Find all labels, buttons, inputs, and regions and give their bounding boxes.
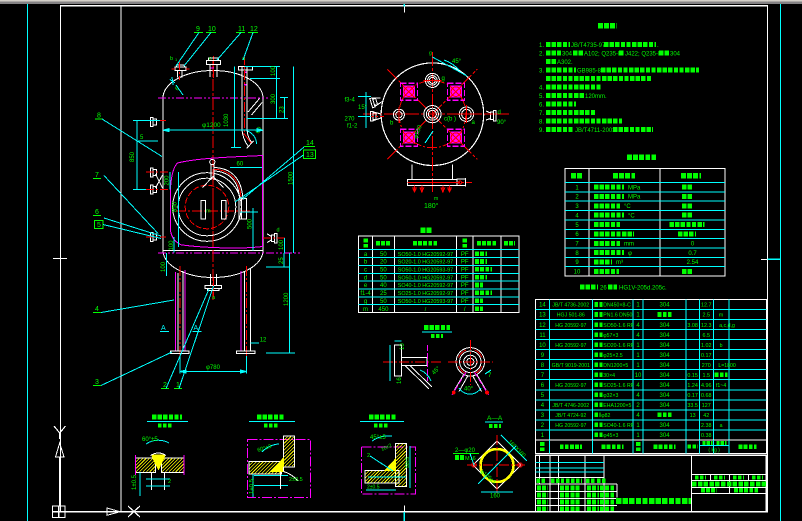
svg-text:14: 14 [306, 140, 314, 147]
svg-text:50: 50 [380, 299, 387, 305]
svg-text:50: 50 [380, 252, 387, 258]
svg-text:12: 12 [260, 338, 267, 344]
svg-text:f3-4: f3-4 [345, 98, 356, 104]
svg-text:2: 2 [367, 453, 370, 459]
svg-text:4.: 4. [539, 86, 544, 92]
svg-text:φ780: φ780 [206, 365, 221, 371]
svg-text:13: 13 [690, 413, 696, 419]
svg-text:6: 6 [95, 209, 99, 216]
svg-text:40: 40 [380, 283, 387, 289]
svg-text:SO50-1.0 HG20592-97: SO50-1.0 HG20592-97 [398, 252, 453, 258]
svg-text:304: 304 [670, 52, 681, 58]
svg-text:c: c [364, 268, 367, 274]
svg-text:60: 60 [237, 162, 244, 168]
svg-text:0.7: 0.7 [688, 251, 697, 257]
svg-text:L=1800: L=1800 [718, 363, 736, 369]
svg-text:7: 7 [95, 172, 99, 179]
svg-text:7.: 7. [539, 111, 544, 117]
svg-text:3: 3 [95, 379, 99, 386]
svg-text:φ32×3: φ32×3 [603, 393, 618, 399]
svg-text:GB/T 9019-2001: GB/T 9019-2001 [552, 363, 590, 369]
svg-text:2.38: 2.38 [701, 423, 712, 429]
svg-text:6.5: 6.5 [703, 333, 711, 339]
svg-text:GB985-89: GB985-89 [577, 69, 605, 75]
svg-text:25: 25 [380, 291, 387, 297]
svg-text:( kg ): ( kg ) [708, 448, 720, 454]
svg-text:g: g [429, 51, 432, 57]
svg-text:0.68: 0.68 [701, 393, 712, 399]
svg-text:SO50-1.0 HG20592-97: SO50-1.0 HG20592-97 [398, 275, 453, 281]
svg-text:JB/T 4746-2002: JB/T 4746-2002 [552, 403, 589, 409]
svg-text:23: 23 [280, 106, 286, 113]
svg-text:PF: PF [461, 299, 469, 305]
svg-text:11: 11 [238, 26, 245, 33]
svg-text:A302.: A302. [557, 60, 573, 66]
svg-text:10: 10 [208, 26, 216, 33]
svg-text:PF: PF [461, 260, 469, 266]
svg-text:HG 20592-97: HG 20592-97 [555, 423, 586, 429]
svg-text:M16: M16 [465, 456, 476, 462]
svg-text:a,c,d,g: a,c,d,g [719, 323, 735, 329]
svg-text:g: g [364, 299, 367, 305]
svg-text:12.7: 12.7 [701, 303, 712, 309]
svg-text:500: 500 [248, 218, 254, 229]
svg-text:m³: m³ [616, 260, 623, 266]
svg-text:m: m [719, 313, 723, 319]
svg-text:120mm.: 120mm. [585, 94, 607, 100]
svg-text:304: 304 [660, 383, 671, 389]
svg-text:1.5: 1.5 [703, 373, 711, 379]
svg-text:2.: 2. [539, 52, 544, 58]
svg-text:100: 100 [279, 239, 285, 250]
svg-text:PF: PF [461, 291, 469, 297]
svg-text:304: 304 [660, 363, 671, 369]
svg-text:φ57×3: φ57×3 [603, 333, 618, 339]
svg-text:304: 304 [562, 52, 573, 58]
svg-text:15°: 15° [358, 105, 368, 111]
svg-text:127: 127 [702, 403, 711, 409]
svg-text:d: d [364, 275, 367, 281]
svg-text:90°: 90° [497, 120, 507, 126]
svg-text:g: g [442, 76, 445, 82]
svg-text:100: 100 [161, 261, 167, 272]
svg-text:10: 10 [400, 343, 406, 350]
svg-text:MPa: MPa [628, 195, 641, 201]
svg-text:m: m [206, 209, 211, 215]
svg-text:4.96: 4.96 [701, 383, 712, 389]
svg-text:PF: PF [461, 252, 469, 258]
svg-text:PF: PF [461, 275, 469, 281]
svg-text:HG1V-205d.205c.: HG1V-205d.205c. [619, 285, 667, 291]
svg-text:4: 4 [95, 306, 99, 313]
svg-text:1500: 1500 [288, 171, 294, 185]
svg-text:10: 10 [574, 270, 581, 276]
svg-text:MPa: MPa [628, 185, 641, 191]
svg-text:JB/T4711-2003: JB/T4711-2003 [575, 128, 616, 134]
svg-text:PN1.6 DN50: PN1.6 DN50 [603, 313, 632, 319]
svg-text:12: 12 [250, 26, 258, 33]
svg-text:3.08: 3.08 [687, 323, 698, 329]
svg-text:0.17: 0.17 [701, 353, 712, 359]
svg-text:50±5: 50±5 [405, 457, 411, 468]
svg-text:13: 13 [306, 152, 314, 159]
svg-text:20: 20 [380, 260, 387, 266]
svg-text:HGJ 501-86: HGJ 501-86 [557, 313, 585, 319]
svg-text:40°: 40° [464, 387, 474, 393]
svg-text:9: 9 [196, 26, 200, 33]
svg-text:φ45×3: φ45×3 [603, 433, 618, 439]
svg-text:SO40-1.6 RF: SO40-1.6 RF [603, 423, 634, 429]
svg-text:J422; Q235-B: J422; Q235-B [625, 52, 662, 58]
svg-text:m: m [363, 307, 368, 313]
svg-text:HG 20592-97: HG 20592-97 [555, 323, 586, 329]
svg-text:25: 25 [279, 257, 285, 264]
svg-text:8: 8 [97, 113, 101, 120]
svg-text:33.5: 33.5 [687, 403, 698, 409]
svg-text:2±0.5: 2±0.5 [289, 477, 303, 483]
svg-text:SO25-1.0 HG20592-97: SO25-1.0 HG20592-97 [398, 291, 453, 297]
svg-text:10: 10 [635, 373, 642, 379]
svg-text:850: 850 [130, 151, 136, 162]
svg-text:12: 12 [539, 323, 546, 329]
svg-text:16: 16 [397, 377, 403, 384]
svg-text:1±0.5: 1±0.5 [250, 478, 256, 494]
svg-text:5.: 5. [539, 94, 544, 100]
svg-text:850: 850 [173, 201, 179, 212]
svg-text:d: d [277, 228, 280, 234]
svg-text:1030: 1030 [224, 113, 230, 127]
svg-text:45°: 45° [452, 59, 462, 65]
svg-text:2.54: 2.54 [687, 260, 699, 266]
svg-text:300: 300 [271, 93, 277, 104]
svg-text:6.: 6. [539, 103, 544, 109]
svg-text:304: 304 [660, 373, 671, 379]
svg-text:304: 304 [660, 433, 671, 439]
svg-text:1±0.5: 1±0.5 [132, 474, 138, 490]
svg-text:°C: °C [628, 213, 635, 219]
svg-text:304: 304 [660, 343, 671, 349]
svg-text:JB/T 4724-92: JB/T 4724-92 [555, 413, 586, 419]
svg-text:26: 26 [600, 285, 607, 291]
svg-text:SO20-1.6 RF: SO20-1.6 RF [603, 343, 634, 349]
svg-text:0.15: 0.15 [687, 373, 698, 379]
svg-text:a: a [720, 423, 723, 429]
svg-text:SO25-1.6 RF: SO25-1.6 RF [603, 383, 634, 389]
svg-text:200: 200 [164, 175, 170, 186]
svg-text:φ1200: φ1200 [202, 122, 221, 129]
svg-text:HG 20592-97: HG 20592-97 [555, 383, 586, 389]
svg-text:10: 10 [539, 343, 546, 349]
svg-text:DN450×8-C: DN450×8-C [603, 303, 631, 309]
svg-text:SO40-1.0 HG20592-97: SO40-1.0 HG20592-97 [398, 283, 453, 289]
svg-text:3.: 3. [539, 69, 544, 75]
svg-text:100: 100 [271, 65, 277, 76]
svg-text:0.17: 0.17 [687, 393, 698, 399]
svg-text:HG 20592-97: HG 20592-97 [555, 343, 586, 349]
svg-text:f1-4: f1-4 [360, 291, 371, 297]
svg-text:304: 304 [660, 333, 671, 339]
svg-text:304: 304 [660, 403, 671, 409]
svg-text:2.5: 2.5 [703, 313, 711, 319]
svg-text:A—A: A—A [487, 415, 503, 422]
svg-text:11: 11 [539, 333, 546, 339]
svg-text:DN1200×5: DN1200×5 [603, 363, 628, 369]
svg-text:1200: 1200 [284, 292, 290, 306]
svg-text:f1~4: f1~4 [716, 383, 726, 389]
svg-text:42: 42 [703, 413, 709, 419]
svg-text:φ25×2.5: φ25×2.5 [603, 353, 622, 359]
svg-text:60°±5: 60°±5 [142, 437, 158, 443]
svg-text:PF: PF [461, 283, 469, 289]
svg-text:b: b [170, 56, 173, 62]
svg-text:m: m [434, 196, 438, 202]
svg-text:1.02: 1.02 [701, 343, 712, 349]
svg-text:304: 304 [660, 423, 671, 429]
svg-text:100: 100 [169, 240, 175, 251]
svg-text:φ82: φ82 [601, 413, 610, 419]
svg-text:304: 304 [660, 323, 671, 329]
svg-text:f1-2: f1-2 [347, 124, 358, 130]
svg-text:mm: mm [624, 241, 634, 247]
svg-text:1.24: 1.24 [687, 383, 698, 389]
svg-text:°C: °C [624, 204, 631, 210]
svg-text:450: 450 [378, 307, 389, 313]
svg-text:270: 270 [702, 363, 711, 369]
svg-text:30×4: 30×4 [603, 373, 615, 379]
svg-text:8.: 8. [539, 120, 544, 126]
svg-text:50: 50 [380, 275, 387, 281]
svg-text:304: 304 [660, 393, 671, 399]
svg-text:0.38: 0.38 [701, 433, 712, 439]
svg-text:c: c [209, 56, 212, 62]
svg-text:SO20-1.0 HG20592-97: SO20-1.0 HG20592-97 [398, 260, 453, 266]
svg-text:304: 304 [660, 303, 671, 309]
svg-text:JB/T 4736-2002: JB/T 4736-2002 [552, 303, 589, 309]
svg-text:14: 14 [539, 303, 546, 309]
svg-text:180°: 180° [424, 202, 439, 210]
svg-text:50: 50 [380, 268, 387, 274]
svg-text:SO50-1.6 RF: SO50-1.6 RF [603, 323, 634, 329]
svg-text:2: 2 [168, 479, 171, 485]
svg-text:12.3: 12.3 [701, 323, 712, 329]
svg-text:13: 13 [539, 313, 546, 319]
svg-text:JB/T4735-97: JB/T4735-97 [571, 43, 606, 49]
svg-text:c(b ): c(b ) [444, 117, 456, 123]
svg-text:270: 270 [345, 117, 356, 123]
svg-text:SO50-1.0 HG20593-97: SO50-1.0 HG20593-97 [398, 268, 453, 274]
svg-text:9.: 9. [539, 128, 544, 134]
svg-text:160: 160 [490, 494, 501, 500]
svg-text:b: b [720, 343, 723, 349]
svg-text:1.: 1. [539, 43, 544, 49]
svg-text:PF: PF [461, 268, 469, 274]
svg-text:A102; Q235-B: A102; Q235-B [584, 52, 622, 58]
svg-text:304: 304 [660, 353, 671, 359]
svg-text:d: d [498, 110, 501, 116]
svg-text:φ: φ [628, 251, 632, 257]
svg-text:5: 5 [97, 222, 101, 229]
svg-text:SO50-1.0 HG20593-97: SO50-1.0 HG20593-97 [398, 299, 453, 305]
svg-text:EHA1200×5: EHA1200×5 [603, 403, 631, 409]
svg-text:45°±5: 45°±5 [370, 435, 386, 441]
